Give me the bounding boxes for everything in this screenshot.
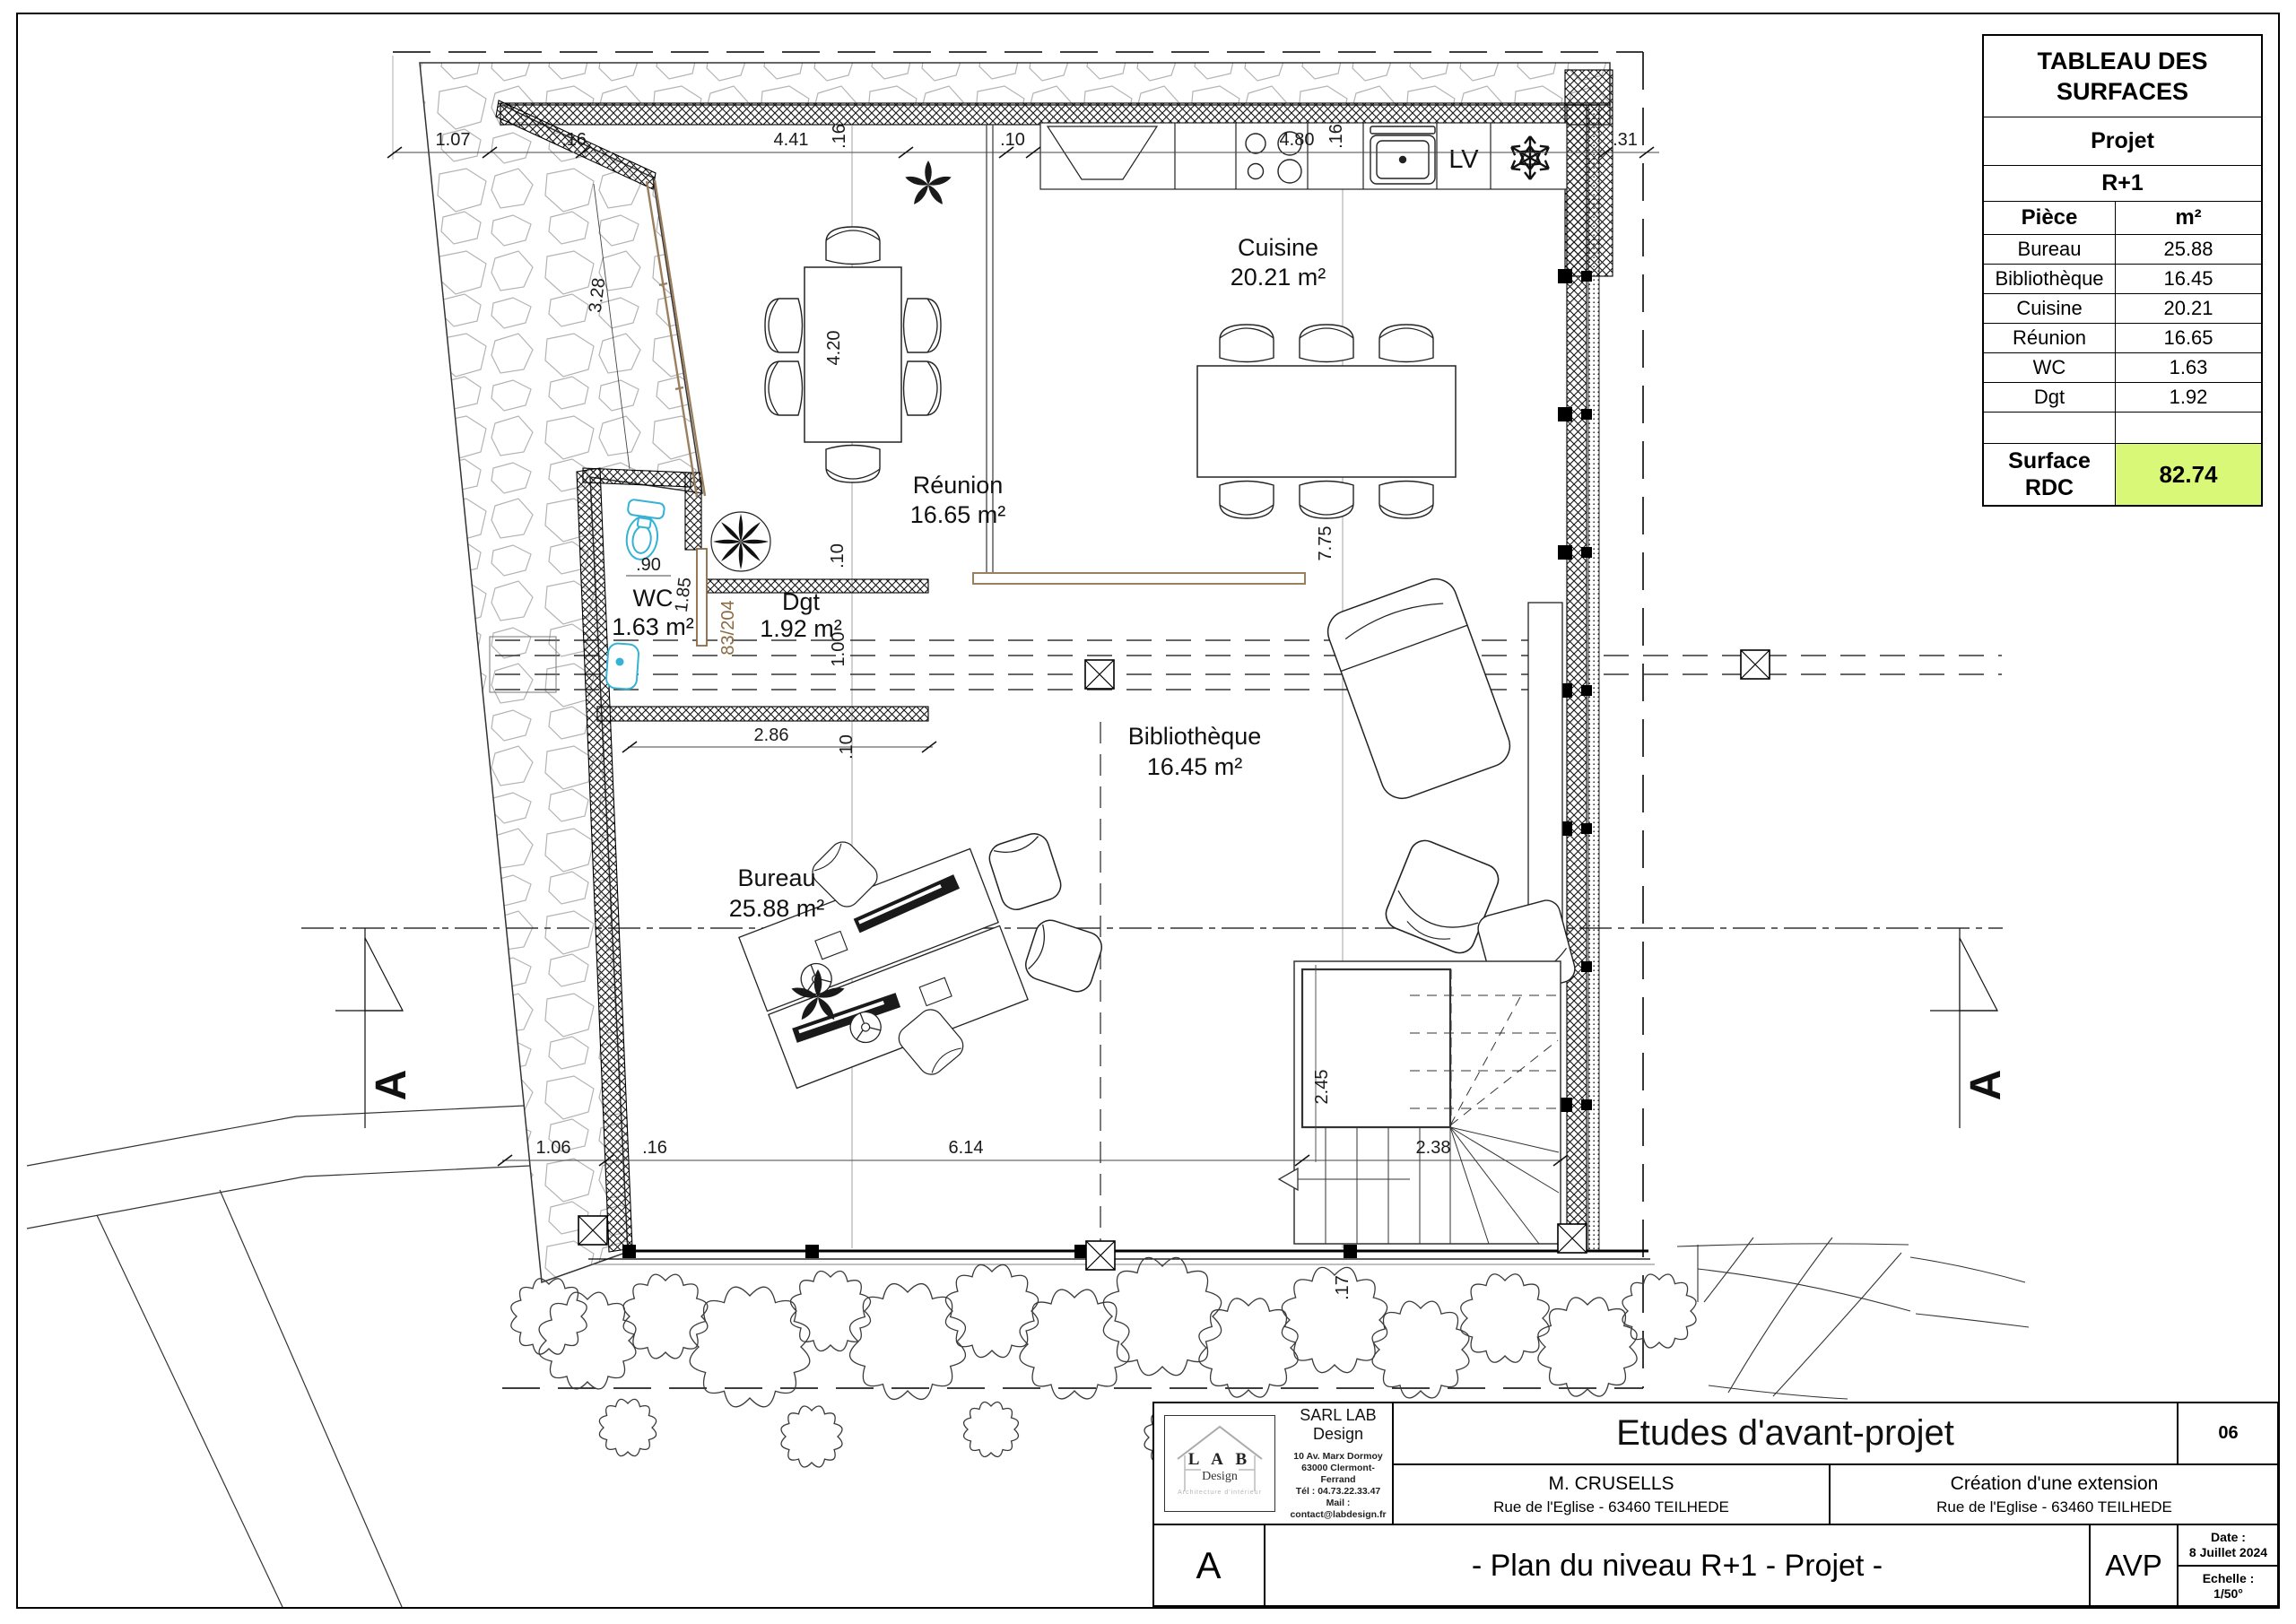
svg-text:.10: .10 bbox=[1000, 130, 1025, 150]
door-leaf bbox=[697, 549, 707, 646]
guest-armchair bbox=[986, 829, 1065, 913]
surface-table-level: R+1 bbox=[1984, 166, 2261, 201]
paved-path bbox=[1677, 1238, 2029, 1399]
stair-arrow-icon bbox=[1279, 1168, 1298, 1190]
svg-text:4.41: 4.41 bbox=[774, 130, 809, 150]
bibliotheque-furniture bbox=[1322, 573, 1578, 1000]
surface-table-title: TABLEAU DES SURFACES bbox=[1984, 36, 2261, 117]
svg-text:.16: .16 bbox=[642, 1138, 667, 1158]
svg-text:1.92 m²: 1.92 m² bbox=[760, 615, 842, 642]
svg-text:.90: .90 bbox=[636, 555, 661, 575]
table-row: WC 1.63 bbox=[1984, 352, 2261, 382]
dishwasher-label: LV bbox=[1448, 145, 1479, 174]
table-row: Réunion 16.65 bbox=[1984, 323, 2261, 352]
toilet-icon bbox=[622, 499, 665, 562]
void-edge-band bbox=[490, 637, 2002, 692]
room-label-bibliotheque: Bibliothèque bbox=[1128, 723, 1262, 750]
bookshelf bbox=[1528, 603, 1562, 929]
room-label-bureau: Bureau bbox=[737, 864, 815, 891]
plant-icon bbox=[711, 512, 770, 571]
svg-text:7.75: 7.75 bbox=[1316, 526, 1335, 561]
svg-text:.17: .17 bbox=[1333, 1275, 1352, 1300]
table-row: Bureau 25.88 bbox=[1984, 234, 2261, 264]
wc-sink-icon bbox=[605, 643, 639, 690]
surface-table-project: Projet bbox=[1984, 117, 2261, 165]
section-marker-right: A bbox=[1930, 928, 2010, 1128]
meeting-table bbox=[765, 227, 941, 482]
section-marker-left: A bbox=[335, 928, 415, 1128]
surface-table: TABLEAU DES SURFACES Projet R+1 Pièce m²… bbox=[1982, 34, 2263, 507]
door-code-label: 83/204 bbox=[718, 600, 738, 655]
dining-table bbox=[1197, 325, 1456, 518]
table-row-total: Surface RDC 82.74 bbox=[1984, 443, 2261, 505]
svg-text:.10: .10 bbox=[828, 543, 848, 569]
total-value: 82.74 bbox=[2116, 444, 2261, 505]
svg-text:2.45: 2.45 bbox=[1312, 1070, 1332, 1105]
svg-text:16.45 m²: 16.45 m² bbox=[1147, 753, 1243, 780]
svg-text:1.85: 1.85 bbox=[672, 577, 696, 613]
svg-text:1.06: 1.06 bbox=[536, 1138, 571, 1158]
table-row: Cuisine 20.21 bbox=[1984, 293, 2261, 323]
table-row: Bibliothèque 16.45 bbox=[1984, 264, 2261, 293]
svg-text:2.38: 2.38 bbox=[1416, 1138, 1451, 1158]
terrain-lines bbox=[27, 1106, 530, 1607]
svg-text:6.14: 6.14 bbox=[949, 1138, 984, 1158]
svg-text:25.88 m²: 25.88 m² bbox=[729, 895, 825, 922]
drawing-sheet: LV bbox=[0, 0, 2296, 1624]
col-header-piece: Pièce bbox=[1984, 202, 2116, 234]
plant-small-icon bbox=[904, 161, 952, 206]
svg-text:16.65 m²: 16.65 m² bbox=[910, 501, 1006, 528]
svg-text:4.80: 4.80 bbox=[1280, 130, 1315, 150]
svg-text:.31: .31 bbox=[1613, 130, 1638, 150]
total-label: Surface RDC bbox=[1984, 444, 2116, 505]
svg-text:20.21 m²: 20.21 m² bbox=[1231, 264, 1326, 291]
svg-text:3.28: 3.28 bbox=[586, 277, 610, 314]
floor-plan: LV bbox=[0, 0, 2296, 1624]
chaise-longue bbox=[1322, 573, 1516, 804]
svg-text:.10: .10 bbox=[837, 734, 857, 760]
svg-text:.16: .16 bbox=[830, 124, 849, 149]
table-row: Dgt 1.92 bbox=[1984, 382, 2261, 412]
svg-text:4.20: 4.20 bbox=[824, 331, 844, 366]
table-row-empty bbox=[1984, 412, 2261, 443]
svg-text:.16: .16 bbox=[1326, 124, 1346, 149]
sink-icon bbox=[1370, 126, 1435, 184]
svg-text:1.07: 1.07 bbox=[436, 130, 471, 150]
section-letter: A bbox=[368, 1070, 415, 1101]
svg-text:2.86: 2.86 bbox=[754, 725, 789, 745]
svg-text:.16: .16 bbox=[561, 130, 587, 150]
room-label-reunion: Réunion bbox=[913, 472, 1004, 499]
room-label-wc: WC bbox=[633, 585, 674, 612]
svg-text:1.63 m²: 1.63 m² bbox=[612, 613, 694, 640]
room-label-dgt: Dgt bbox=[782, 588, 821, 615]
bottom-facade bbox=[588, 1245, 1655, 1264]
room-label-cuisine: Cuisine bbox=[1238, 234, 1318, 261]
title-block-border bbox=[1152, 1402, 2279, 1607]
section-letter: A bbox=[1962, 1070, 2010, 1101]
col-header-m2: m² bbox=[2116, 202, 2261, 234]
